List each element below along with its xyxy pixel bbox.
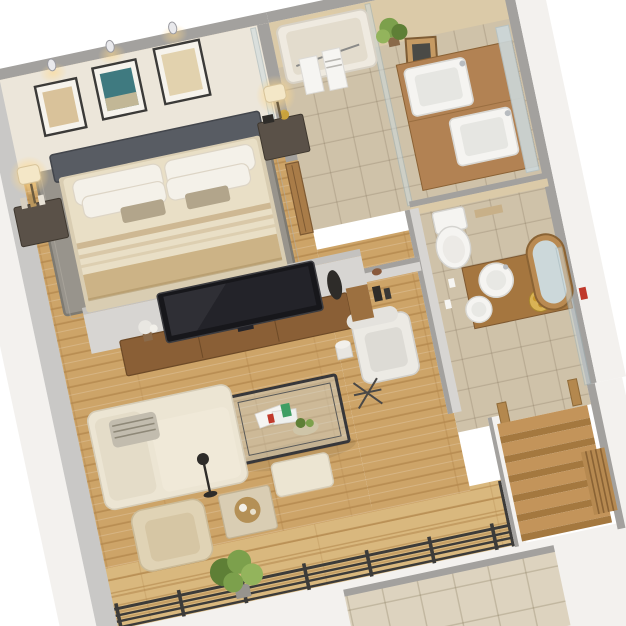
floorplan-canvas xyxy=(0,0,626,626)
apartment xyxy=(0,0,626,626)
